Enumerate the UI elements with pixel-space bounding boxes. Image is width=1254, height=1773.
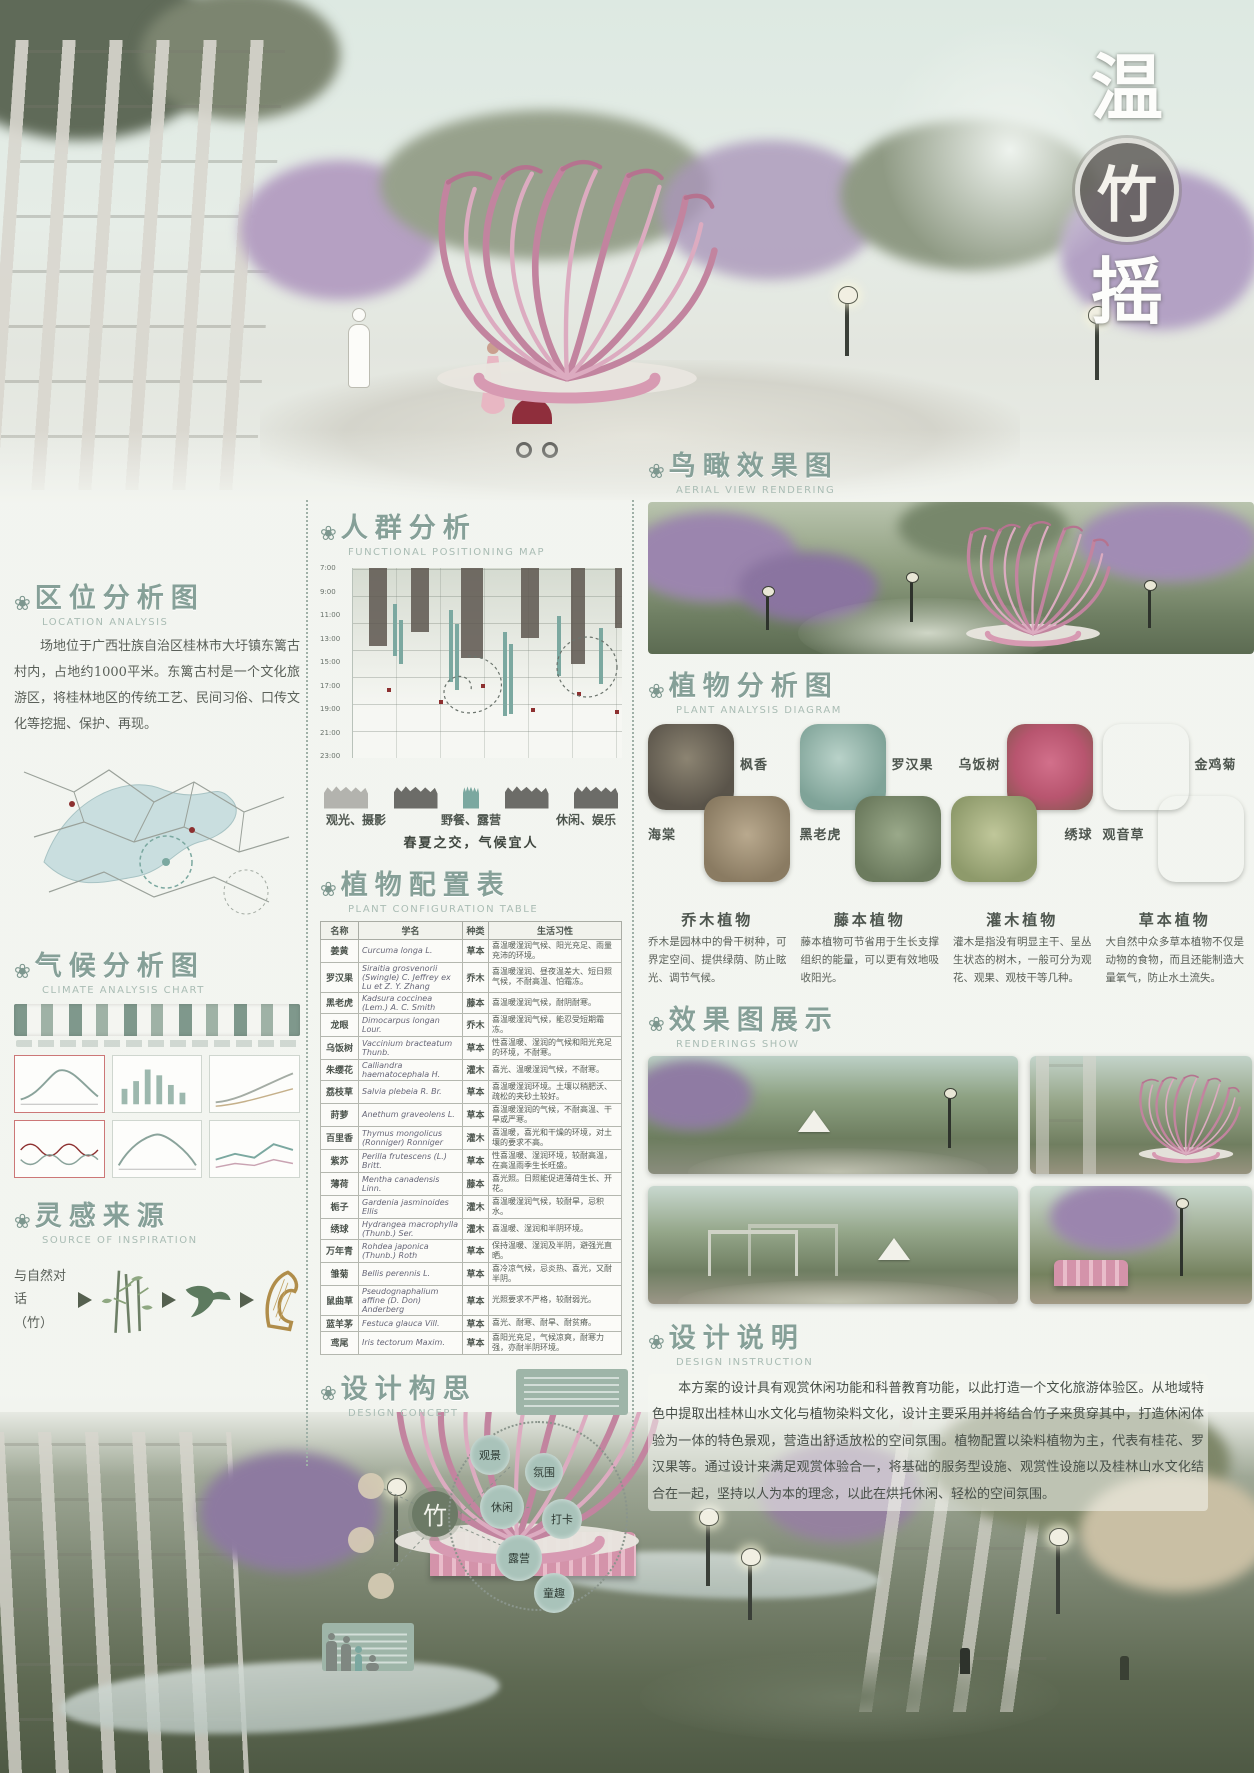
plant-latin-name: Hydrangea macrophylla (Thunb.) Ser. <box>359 1218 463 1239</box>
plant-name: 栀子 <box>321 1195 359 1218</box>
gear-flower-icon: ❀ <box>648 459 665 483</box>
time-tick: 17:00 <box>320 682 350 706</box>
section-header-plant-analysis: ❀植物分析图 PLANT ANALYSIS DIAGRAM <box>648 664 1244 716</box>
street-lamp <box>1148 588 1151 628</box>
plant-name: 朱缨花 <box>321 1059 359 1080</box>
section-title: 灵感来源 <box>35 1201 171 1232</box>
plant-type: 草本 <box>463 1262 489 1285</box>
climate-chart-humidity <box>14 1120 105 1178</box>
instruction-paragraph: 本方案的设计具有观赏休闲功能和科普教育功能，以此打造一个文化旅游体验区。从地域特… <box>648 1374 1208 1511</box>
plant-name: 龙眼 <box>321 1013 359 1036</box>
plant-latin-name: Anethum graveolens L. <box>359 1103 463 1126</box>
concept-bubble: 打卡 <box>542 1499 582 1539</box>
plant-type: 草本 <box>463 1285 489 1315</box>
location-paragraph: 场地位于广西壮族自治区桂林市大圩镇东篱古村内，占地约1000平米。东篱古村是一个… <box>14 634 300 738</box>
activity-label: 休闲、娱乐 <box>556 811 616 828</box>
street-lamp <box>910 580 913 622</box>
rendering-image <box>648 1186 1018 1304</box>
concept-node <box>348 1527 374 1553</box>
tree-trunk <box>369 568 387 646</box>
concept-bubble: 童趣 <box>534 1573 574 1613</box>
plant-name: 蓝羊茅 <box>321 1315 359 1331</box>
palm-trunks <box>1036 1056 1096 1174</box>
people-group-silhouette <box>574 785 618 809</box>
tree-trunk <box>461 568 483 658</box>
section-title: 植物分析图 <box>669 671 839 702</box>
inspiration-note: 与自然对话 （竹） <box>14 1265 70 1335</box>
purple-tree <box>1050 1186 1180 1252</box>
plant-photo <box>704 796 790 882</box>
plant-name: 黑老虎 <box>321 992 359 1013</box>
time-tick: 15:00 <box>320 658 350 682</box>
plant-name: 罗汉果 <box>321 962 359 992</box>
plant-type: 藤本 <box>463 992 489 1013</box>
concept-node <box>368 1573 394 1599</box>
plant-habit: 喜温暖，喜光和干燥的环境，对土壤的要求不高。 <box>489 1126 622 1149</box>
plant-latin-name: Festuca glauca Vill. <box>359 1315 463 1331</box>
bamboo-grove <box>0 40 286 490</box>
section-title: 气候分析图 <box>35 951 205 982</box>
harp-icon <box>262 1264 300 1336</box>
globe-lamp <box>1056 1542 1060 1614</box>
crowd-caption: 春夏之交，气候宜人 <box>320 832 622 851</box>
street-lamp <box>845 300 849 356</box>
pink-planter <box>1054 1260 1128 1286</box>
spiral-annotation <box>549 632 622 702</box>
table-row: 朱缨花 Calliandra haematocephala H. 灌木 喜光、温… <box>321 1059 622 1080</box>
plant-latin-name: Calliandra haematocephala H. <box>359 1059 463 1080</box>
plant-latin-name: Curcuma longa L. <box>359 939 463 962</box>
plant-latin-name: Gardenia jasminoides Ellis <box>359 1195 463 1218</box>
table-row: 百里香 Thymus mongolicus (Ronniger) Ronnige… <box>321 1126 622 1149</box>
climate-chart-comfort <box>209 1120 300 1178</box>
plant-type: 乔木 <box>463 1013 489 1036</box>
column-header-latin: 学名 <box>359 921 463 939</box>
section-header-crowd: ❀人群分析 FUNCTIONAL POSITIONING MAP <box>320 506 622 558</box>
section-header-renderings: ❀效果图展示 RENDERINGS SHOW <box>648 998 1244 1050</box>
column-header-name: 名称 <box>321 921 359 939</box>
gear-flower-icon: ❀ <box>648 679 665 703</box>
plant-label: 观音草 <box>1103 824 1145 843</box>
marker-dot <box>531 708 535 712</box>
plant-name: 莳萝 <box>321 1103 359 1126</box>
bamboo-sketch-icon <box>100 1260 154 1340</box>
activity-label: 野餐、露营 <box>441 811 501 828</box>
column-header-habit: 生活习性 <box>489 921 622 939</box>
time-tick: 21:00 <box>320 729 350 753</box>
tree-trunk <box>411 568 429 632</box>
plant-thumbnails: 枫香 海棠 罗汉果 黑老虎 乌饭树 绣球 <box>648 724 1244 899</box>
plant-habit: 光照要求不严格，较耐弱光。 <box>489 1285 622 1315</box>
table-row: 荔枝草 Salvia plebeia R. Br. 草本 喜温暖湿润环境。土壤以… <box>321 1080 622 1103</box>
column-header-type: 种类 <box>463 921 489 939</box>
concept-note-box <box>516 1369 628 1415</box>
stone-path <box>678 1280 998 1304</box>
concept-bubble: 露营 <box>496 1535 542 1581</box>
section-title: 人群分析 <box>341 513 477 544</box>
plant-photo <box>1158 796 1244 882</box>
section-header-plant-table: ❀植物配置表 PLANT CONFIGURATION TABLE <box>320 863 622 915</box>
climate-chart-rainfall <box>112 1055 203 1113</box>
pavilion-sculpture <box>402 158 732 406</box>
right-column: ❀鸟瞰效果图 AERIAL VIEW RENDERING ❀植物分析图 PLAN… <box>648 444 1244 1511</box>
plant-latin-name: Vaccinium bracteatum Thunb. <box>359 1036 463 1059</box>
crowd-time-axis: 7:009:0011:0013:0015:0017:0019:0021:0023… <box>320 564 350 776</box>
plant-habit: 性喜温暖、湿润环境，较耐高温，在高温雨季生长旺盛。 <box>489 1149 622 1172</box>
person-silhouette <box>463 785 479 809</box>
section-header-inspiration: ❀灵感来源 SOURCE OF INSPIRATION <box>14 1194 300 1246</box>
plant-habit: 喜光照。日照能促进薄荷生长、开花。 <box>489 1172 622 1195</box>
plant-habit: 喜温暖湿润的气候，不耐高温、干旱或严寒。 <box>489 1103 622 1126</box>
section-header-instruction: ❀设计说明 DESIGN INSTRUCTION <box>648 1316 1244 1368</box>
child-silhouette <box>355 1654 362 1671</box>
category-name: 草本植物 <box>1106 909 1245 930</box>
time-tick: 11:00 <box>320 611 350 635</box>
climate-chart-sunshine <box>209 1055 300 1113</box>
plant-habit: 喜温暖湿润气候，耐阴耐寒。 <box>489 992 622 1013</box>
plant-type: 藤本 <box>463 1172 489 1195</box>
spiral-annotation <box>423 648 513 728</box>
plant-name: 绣球 <box>321 1218 359 1239</box>
plant-latin-name: Rohdea japonica (Thunb.) Roth <box>359 1239 463 1262</box>
plant-habit: 性喜温暖、湿润的气候和阳光充足的环境，不耐寒。 <box>489 1036 622 1059</box>
plant-habit: 喜温暖湿润环境。土壤以稍肥沃、疏松的夹砂土较好。 <box>489 1080 622 1103</box>
gear-flower-icon: ❀ <box>320 1381 337 1405</box>
family-silhouettes <box>326 1641 379 1671</box>
plant-label: 金鸡菊 <box>1195 754 1237 773</box>
inspiration-diagram: 与自然对话 （竹） <box>14 1260 300 1340</box>
plant-photo <box>951 796 1037 882</box>
table-row: 姜黄 Curcuma longa L. 草本 喜温暖湿润气候、阳光充足、雨量充沛… <box>321 939 622 962</box>
plant-thumb-group: 罗汉果 黑老虎 <box>800 724 942 899</box>
section-header-location: ❀区位分析图 LOCATION ANALYSIS <box>14 576 300 628</box>
aerial-view-image <box>648 502 1254 654</box>
plant-latin-name: Dimocarpus longan Lour. <box>359 1013 463 1036</box>
plant-type: 灌木 <box>463 1059 489 1080</box>
pergola <box>748 1224 838 1276</box>
plant-label: 海棠 <box>648 824 676 843</box>
person-silhouette <box>960 1648 970 1674</box>
white-figure <box>346 308 372 404</box>
plant-name: 百里香 <box>321 1126 359 1149</box>
category-description: 藤本植物可节省用于生长支撑组织的能量，可以更有效地吸收阳光。 <box>801 934 940 988</box>
climate-caption-line <box>16 1040 298 1047</box>
section-header-climate: ❀气候分析图 CLIMATE ANALYSIS CHART <box>14 944 300 996</box>
section-title: 设计说明 <box>669 1323 805 1354</box>
plant-label: 罗汉果 <box>892 754 934 773</box>
gear-flower-icon: ❀ <box>320 877 337 901</box>
title-seal-char: 竹 <box>1097 147 1157 234</box>
section-subtitle: AERIAL VIEW RENDERING <box>676 485 1244 496</box>
table-row: 蓝羊茅 Festuca glauca Vill. 草本 喜光、耐寒、耐旱、耐贫瘠… <box>321 1315 622 1331</box>
tree-trunk <box>615 568 622 628</box>
plant-habit: 保持温暖、湿润及半阴，避强光直晒。 <box>489 1239 622 1262</box>
left-column: ❀区位分析图 LOCATION ANALYSIS 场地位于广西壮族自治区桂林市大… <box>14 576 300 1340</box>
plant-habit: 喜温暖湿润气候、阳光充足、雨量充沛的环境。 <box>489 939 622 962</box>
table-row: 莳萝 Anethum graveolens L. 草本 喜温暖湿润的气候，不耐高… <box>321 1103 622 1126</box>
table-row: 雏菊 Bellis perennis L. 草本 喜冷凉气候，忌炎热、喜光，又耐… <box>321 1262 622 1285</box>
activity-label: 观光、摄影 <box>326 811 386 828</box>
table-row: 栀子 Gardenia jasminoides Ellis 灌木 喜温暖湿润气候… <box>321 1195 622 1218</box>
street-lamp <box>1180 1206 1183 1276</box>
title-seal: 竹 <box>1075 138 1179 242</box>
title-char-bottom: 摇 <box>1022 256 1232 328</box>
globe-lamp <box>706 1522 710 1586</box>
time-tick: 9:00 <box>320 588 350 612</box>
section-header-aerial: ❀鸟瞰效果图 AERIAL VIEW RENDERING <box>648 444 1244 496</box>
gear-flower-icon: ❀ <box>14 959 31 983</box>
table-row: 薄荷 Mentha canadensis Linn. 藤本 喜光照。日照能促进薄… <box>321 1172 622 1195</box>
activity-bar <box>393 604 397 656</box>
section-title: 鸟瞰效果图 <box>669 451 839 482</box>
middle-column: ❀人群分析 FUNCTIONAL POSITIONING MAP 7:009:0… <box>306 500 634 1466</box>
plant-habit: 喜冷凉气候，忌炎热、喜光，又耐半阴。 <box>489 1262 622 1285</box>
section-subtitle: DESIGN INSTRUCTION <box>676 1357 1244 1368</box>
street-lamp <box>948 1096 951 1148</box>
marker-dot <box>387 688 391 692</box>
street-lamp <box>766 594 769 630</box>
plant-name: 紫苏 <box>321 1149 359 1172</box>
plant-name: 鸢尾 <box>321 1331 359 1354</box>
section-subtitle: CLIMATE ANALYSIS CHART <box>42 985 300 996</box>
plant-name: 鼠曲草 <box>321 1285 359 1315</box>
table-row: 罗汉果 Siraitia grosvenorii (Swingle) C. Je… <box>321 962 622 992</box>
time-tick: 19:00 <box>320 705 350 729</box>
swallow-icon <box>184 1278 232 1322</box>
canopy-tent <box>878 1238 910 1260</box>
category-name: 乔木植物 <box>648 909 787 930</box>
time-tick: 23:00 <box>320 752 350 776</box>
climate-mini-charts <box>14 1055 300 1178</box>
rendering-image <box>648 1056 1018 1174</box>
purple-tree <box>648 1060 752 1130</box>
gear-flower-icon: ❀ <box>14 591 31 615</box>
plant-latin-name: Pseudognaphalium affine (D. Don) Anderbe… <box>359 1285 463 1315</box>
category-description: 大自然中众多草本植物不仅是动物的食物，而且还能制造大量氧气，防止水土流失。 <box>1106 934 1245 988</box>
plant-type: 灌木 <box>463 1195 489 1218</box>
plant-label: 黑老虎 <box>800 824 842 843</box>
plant-type: 草本 <box>463 1239 489 1262</box>
people-group-silhouette <box>394 785 438 809</box>
location-map-sketch <box>14 742 300 930</box>
section-subtitle: PLANT CONFIGURATION TABLE <box>348 904 622 915</box>
globe-lamp <box>748 1562 752 1620</box>
gear-flower-icon: ❀ <box>648 1012 665 1036</box>
design-poster: 温 竹 摇 ❀区位分析图 LOCATION ANALYSIS 场地位于广西壮族自… <box>0 0 1254 1773</box>
pavilion-sculpture <box>1126 1074 1246 1164</box>
title-char-top: 温 <box>1022 52 1232 124</box>
concept-diagram: 竹 观景氛围休闲打卡露营童趣 <box>320 1427 622 1677</box>
plant-name: 万年青 <box>321 1239 359 1262</box>
plant-habit: 喜光、耐寒、耐旱、耐贫瘠。 <box>489 1315 622 1331</box>
table-row: 龙眼 Dimocarpus longan Lour. 乔木 喜温暖湿润气候，能忍… <box>321 1013 622 1036</box>
climate-chart-wind <box>112 1120 203 1178</box>
crowd-activity-labels: 观光、摄影野餐、露营休闲、娱乐 <box>320 811 622 828</box>
dog-silhouette <box>366 1663 379 1671</box>
plant-type: 草本 <box>463 1149 489 1172</box>
plant-habit: 喜阳光充足，气候凉爽，耐寒力强，亦耐半阴环境。 <box>489 1331 622 1354</box>
people-group-silhouette <box>505 785 549 809</box>
plant-habit: 喜温暖、湿润和半阴环境。 <box>489 1218 622 1239</box>
table-row: 乌饭树 Vaccinium bracteatum Thunb. 草本 性喜温暖、… <box>321 1036 622 1059</box>
time-tick: 7:00 <box>320 564 350 588</box>
table-row: 鼠曲草 Pseudognaphalium affine (D. Don) And… <box>321 1285 622 1315</box>
plant-category: 草本植物 大自然中众多草本植物不仅是动物的食物，而且还能制造大量氧气，防止水土流… <box>1106 909 1245 988</box>
table-header-row: 名称 学名 种类 生活习性 <box>321 921 622 939</box>
activity-bar <box>399 620 403 664</box>
concept-node <box>358 1473 384 1499</box>
plant-latin-name: Kadsura coccinea (Lem.) A. C. Smith <box>359 992 463 1013</box>
crowd-silhouettes <box>320 779 622 809</box>
plant-type: 乔木 <box>463 962 489 992</box>
section-title: 效果图展示 <box>669 1005 839 1036</box>
adult-silhouette <box>326 1641 337 1671</box>
pavilion-sculpture <box>948 520 1118 648</box>
gear-flower-icon: ❀ <box>648 1330 665 1354</box>
plant-label: 枫香 <box>740 754 768 773</box>
section-subtitle: SOURCE OF INSPIRATION <box>42 1235 300 1246</box>
plant-thumb-group: 金鸡菊 观音草 <box>1103 724 1245 899</box>
table-row: 紫苏 Perilla frutescens (L.) Britt. 草本 性喜温… <box>321 1149 622 1172</box>
plant-name: 姜黄 <box>321 939 359 962</box>
concept-bubble: 休闲 <box>480 1485 524 1529</box>
plant-latin-name: Siraitia grosvenorii (Swingle) C. Jeffre… <box>359 962 463 992</box>
canopy-tent <box>798 1110 830 1132</box>
plant-category: 藤本植物 藤本植物可节省用于生长支撑组织的能量，可以更有效地吸收阳光。 <box>801 909 940 988</box>
table-row: 绣球 Hydrangea macrophylla (Thunb.) Ser. 灌… <box>321 1218 622 1239</box>
plant-type: 灌木 <box>463 1126 489 1149</box>
section-title: 区位分析图 <box>35 583 205 614</box>
people-group-silhouette <box>324 785 368 809</box>
adult-silhouette <box>341 1644 351 1671</box>
renderings-grid <box>648 1056 1244 1304</box>
plant-latin-name: Mentha canadensis Linn. <box>359 1172 463 1195</box>
plant-latin-name: Salvia plebeia R. Br. <box>359 1080 463 1103</box>
plant-configuration-table: 名称 学名 种类 生活习性 姜黄 Curcuma longa L. 草本 喜温暖… <box>320 921 622 1355</box>
plant-latin-name: Iris tectorum Maxim. <box>359 1331 463 1354</box>
arrow-right-icon <box>162 1292 176 1308</box>
marker-dot <box>615 710 619 714</box>
poster-title: 温 竹 摇 <box>1022 52 1232 328</box>
section-subtitle: RENDERINGS SHOW <box>676 1039 1244 1050</box>
plant-type: 草本 <box>463 1315 489 1331</box>
arrow-right-icon <box>78 1292 92 1308</box>
plant-thumb-group: 枫香 海棠 <box>648 724 790 899</box>
plant-habit: 喜温暖湿润、昼夜温差大、短日照气候，不耐高温、怕霜冻。 <box>489 962 622 992</box>
plant-name: 薄荷 <box>321 1172 359 1195</box>
plant-habit: 喜温暖湿润气候，较耐旱，忌积水。 <box>489 1195 622 1218</box>
category-name: 灌木植物 <box>953 909 1092 930</box>
plant-type: 草本 <box>463 1331 489 1354</box>
lawn <box>640 1652 1060 1742</box>
climate-month-strip <box>14 1004 300 1036</box>
plant-habit: 喜光、温暖湿润气候，不耐寒。 <box>489 1059 622 1080</box>
crowd-activity-chart <box>352 568 622 758</box>
gear-flower-icon: ❀ <box>14 1209 31 1233</box>
concept-bubble: 氛围 <box>525 1453 563 1491</box>
section-subtitle: FUNCTIONAL POSITIONING MAP <box>348 547 622 558</box>
plant-label: 乌饭树 <box>958 754 1000 773</box>
category-description: 乔木是园林中的骨干树种，可界定空间、提供绿荫、防止眩光、调节气候。 <box>648 934 787 988</box>
plant-type: 草本 <box>463 1103 489 1126</box>
plant-latin-name: Bellis perennis L. <box>359 1262 463 1285</box>
rendering-image <box>1030 1056 1252 1174</box>
section-subtitle: PLANT ANALYSIS DIAGRAM <box>676 705 1244 716</box>
category-description: 灌木是指没有明显主干、呈丛生状态的树木，一般可分为观花、观果、观枝干等几种。 <box>953 934 1092 988</box>
concept-bubble: 观景 <box>470 1435 510 1475</box>
section-title: 植物配置表 <box>341 870 511 901</box>
category-name: 藤本植物 <box>801 909 940 930</box>
section-subtitle: LOCATION ANALYSIS <box>42 617 300 628</box>
gear-flower-icon: ❀ <box>320 521 337 545</box>
plant-latin-name: Perilla frutescens (L.) Britt. <box>359 1149 463 1172</box>
climate-chart-temperature <box>14 1055 105 1113</box>
walkway <box>688 1148 988 1174</box>
plant-category: 灌木植物 灌木是指没有明显主干、呈丛生状态的树木，一般可分为观花、观果、观枝干等… <box>953 909 1092 988</box>
table-row: 万年青 Rohdea japonica (Thunb.) Roth 草本 保持温… <box>321 1239 622 1262</box>
plant-categories: 乔木植物 乔木是园林中的骨干树种，可界定空间、提供绿荫、防止眩光、调节气候。 藤… <box>648 909 1244 988</box>
section-title: 设计构思 <box>341 1374 477 1405</box>
tree-trunk <box>521 568 539 638</box>
table-row: 鸢尾 Iris tectorum Maxim. 草本 喜阳光充足，气候凉爽，耐寒… <box>321 1331 622 1354</box>
time-tick: 13:00 <box>320 635 350 659</box>
plant-name: 荔枝草 <box>321 1080 359 1103</box>
plant-category: 乔木植物 乔木是园林中的骨干树种，可界定空间、提供绿荫、防止眩光、调节气候。 <box>648 909 787 988</box>
plant-type: 草本 <box>463 1080 489 1103</box>
rendering-image <box>1030 1186 1252 1304</box>
plant-name: 乌饭树 <box>321 1036 359 1059</box>
plant-type: 草本 <box>463 939 489 962</box>
plant-thumb-group: 乌饭树 绣球 <box>951 724 1093 899</box>
plant-type: 草本 <box>463 1036 489 1059</box>
plant-latin-name: Thymus mongolicus (Ronniger) Ronniger <box>359 1126 463 1149</box>
person-silhouette <box>1120 1656 1129 1680</box>
arrow-right-icon <box>240 1292 254 1308</box>
plant-type: 灌木 <box>463 1218 489 1239</box>
table-row: 黑老虎 Kadsura coccinea (Lem.) A. C. Smith … <box>321 992 622 1013</box>
plant-label: 绣球 <box>1064 824 1092 843</box>
plant-photo <box>855 796 941 882</box>
plant-habit: 喜温暖湿润气候，能忍受短期霜冻。 <box>489 1013 622 1036</box>
plant-name: 雏菊 <box>321 1262 359 1285</box>
